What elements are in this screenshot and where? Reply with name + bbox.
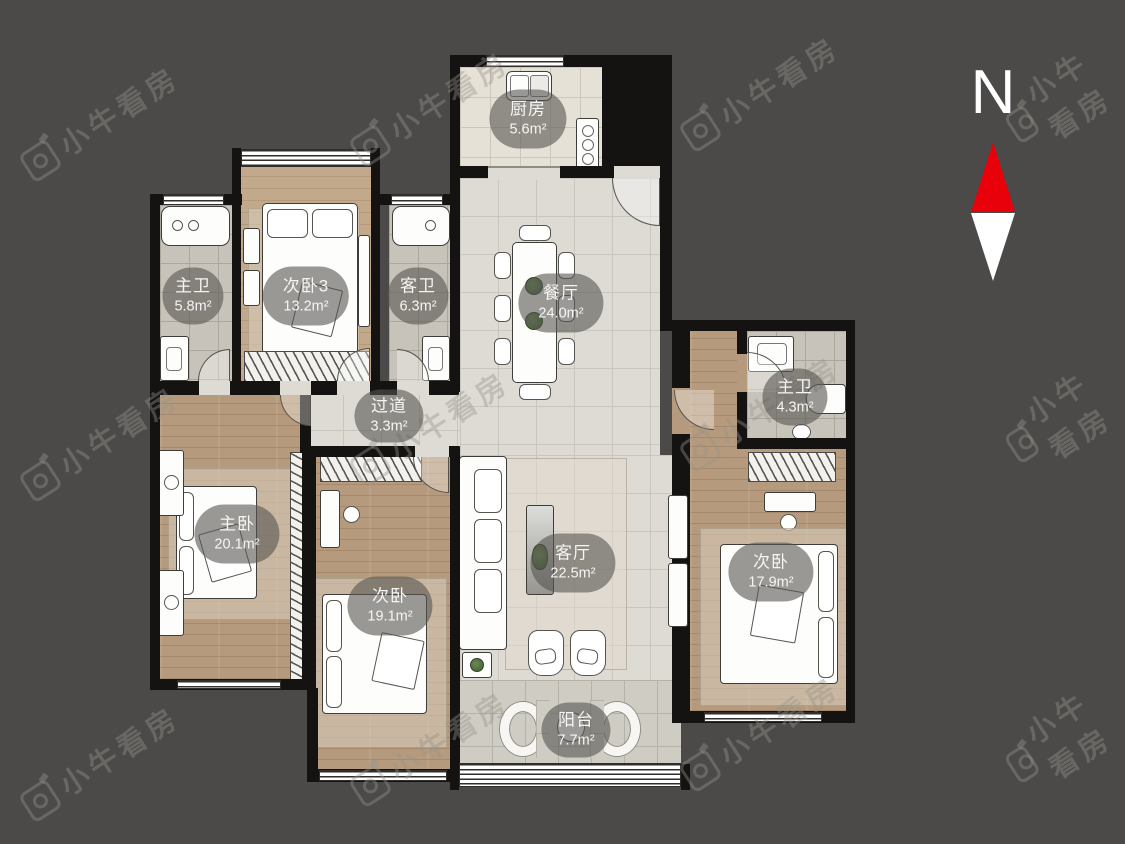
dresser xyxy=(358,235,370,327)
room-label-bedroom-3: 次卧313.2m² xyxy=(263,267,349,326)
room-label-living-room: 客厅22.5m² xyxy=(530,534,615,593)
watermark-logo-icon xyxy=(1003,744,1041,785)
room-label-master-bath-right: 主卫4.3m² xyxy=(762,369,827,426)
bathtub xyxy=(392,206,450,246)
desk xyxy=(320,490,340,548)
bathroom-sink xyxy=(160,336,189,381)
wall xyxy=(302,447,316,688)
wardrobe xyxy=(748,452,836,482)
door-opening xyxy=(337,381,370,395)
watermark: 小牛看房 xyxy=(15,55,187,187)
floor-plan-canvas: 小牛看房 小牛看房 小牛看房 小牛看房 小牛看房 小牛看房 小牛看房 小牛看房 … xyxy=(0,0,1125,844)
compass-north-arrow xyxy=(971,142,1015,212)
window xyxy=(319,770,447,781)
compass-south-arrow xyxy=(971,213,1015,281)
wall xyxy=(150,194,160,392)
watermark: 小牛看房 xyxy=(989,668,1125,805)
door-opening xyxy=(199,381,230,395)
wall xyxy=(846,320,855,723)
dining-chair xyxy=(519,384,551,400)
room-label-balcony: 阳台7.7m² xyxy=(541,703,610,758)
dining-chair xyxy=(558,338,575,365)
pillow xyxy=(326,600,342,652)
wall xyxy=(150,381,160,690)
pillow xyxy=(818,617,834,678)
sliding-door-panel xyxy=(668,495,688,559)
dining-chair xyxy=(494,338,511,365)
dining-chair xyxy=(494,295,511,322)
wall xyxy=(307,688,318,780)
room-label-dining-room: 餐厅24.0m² xyxy=(518,274,603,333)
watermark: 小牛看房 xyxy=(989,348,1125,485)
wall xyxy=(737,320,855,331)
kitchen-opening xyxy=(488,166,560,180)
watermark: 小牛看房 xyxy=(15,695,187,827)
north-label: N xyxy=(948,62,1038,124)
wall xyxy=(450,764,459,790)
sofa xyxy=(459,456,507,650)
watermark-logo-icon xyxy=(1003,424,1041,465)
pillow xyxy=(312,209,353,238)
balcony-window xyxy=(459,763,681,787)
desk xyxy=(764,492,816,512)
armchair xyxy=(570,630,606,676)
window xyxy=(177,680,281,689)
pillow xyxy=(818,551,834,612)
pillow xyxy=(326,656,342,708)
room-label-right-bedroom: 次卧17.9m² xyxy=(728,543,813,602)
room-label-master-bath-left: 主卫5.8m² xyxy=(162,268,223,325)
door-opening xyxy=(415,446,449,457)
wall xyxy=(371,194,380,392)
side-table xyxy=(462,652,492,678)
dining-chair xyxy=(494,252,511,279)
pillow xyxy=(267,209,308,238)
door-opening xyxy=(737,354,747,392)
nightstand xyxy=(243,270,260,306)
watermark-logo-icon xyxy=(17,458,63,504)
desk-chair xyxy=(343,506,360,523)
wall xyxy=(681,764,690,790)
window xyxy=(163,194,224,205)
room-label-hallway: 过道3.3m² xyxy=(354,390,423,443)
window xyxy=(241,149,371,167)
room-label-second-bedroom: 次卧19.1m² xyxy=(347,577,432,636)
sliding-door-panel xyxy=(668,563,688,627)
nightstand xyxy=(243,228,260,264)
door-opening xyxy=(280,381,311,395)
wall xyxy=(737,438,855,449)
window xyxy=(704,712,822,722)
watermark-logo-icon xyxy=(17,138,63,184)
window xyxy=(486,55,564,67)
dining-chair xyxy=(519,225,551,241)
wall xyxy=(450,166,460,392)
bathtub xyxy=(161,206,230,246)
watermark-logo-icon xyxy=(677,108,723,154)
room-label-guest-bath: 客卫6.3m² xyxy=(387,268,448,325)
room-label-master-bedroom: 主卧20.1m² xyxy=(194,505,279,564)
wall xyxy=(602,55,672,178)
north-compass: N xyxy=(948,62,1038,282)
wall xyxy=(232,194,241,392)
window xyxy=(391,194,443,205)
wall xyxy=(660,166,672,331)
entry-opening xyxy=(614,166,660,178)
stove xyxy=(576,118,599,170)
speaker xyxy=(158,570,184,636)
wall xyxy=(660,320,746,331)
wall xyxy=(450,55,460,178)
armchair xyxy=(528,630,564,676)
speaker xyxy=(158,450,184,516)
room-label-kitchen: 厨房5.6m² xyxy=(489,90,566,149)
wall xyxy=(450,447,460,780)
watermark-logo-icon xyxy=(17,778,63,824)
watermark: 小牛看房 xyxy=(675,25,847,157)
